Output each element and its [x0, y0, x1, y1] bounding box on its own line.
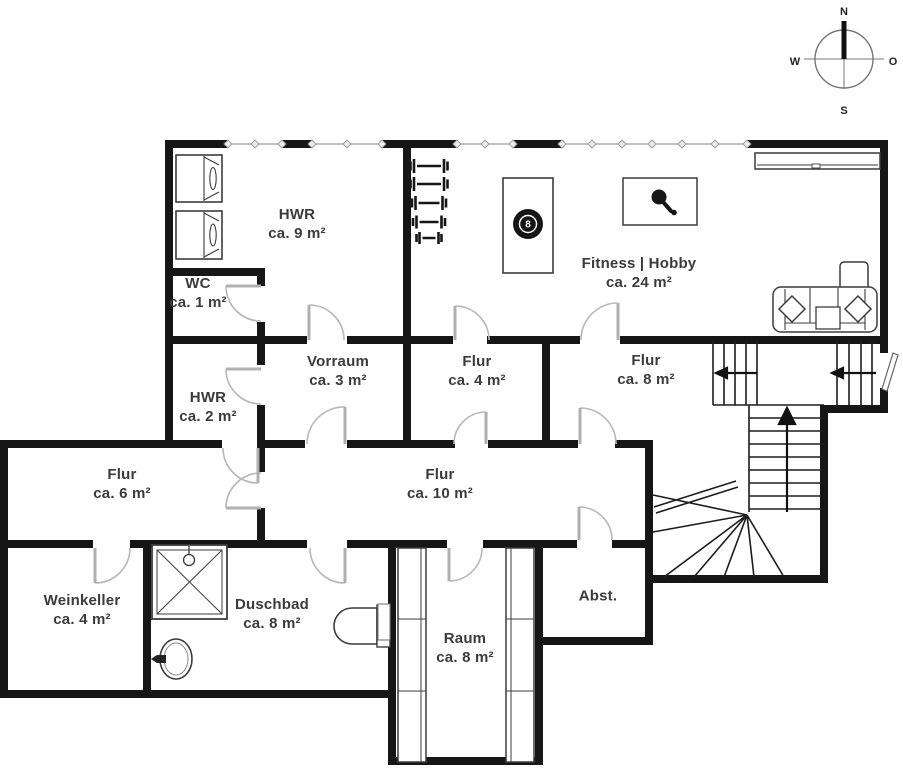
room-name: Abst. [579, 588, 618, 605]
room-name: Flur [425, 466, 454, 483]
room-name: Flur [107, 466, 136, 483]
compass-north-label: N [840, 6, 848, 18]
room-area: ca. 9 m² [268, 225, 325, 242]
table-tennis-icon [623, 178, 697, 225]
room-area: ca. 4 m² [53, 611, 110, 628]
compass-rose-icon [804, 21, 884, 89]
room-label-vorraum: Vorraum ca. 3 m² [307, 352, 369, 390]
room-label-raum: Raum ca. 8 m² [436, 629, 493, 667]
room-area: ca. 4 m² [448, 372, 505, 389]
room-area: ca. 3 m² [309, 372, 366, 389]
room-area: ca. 1 m² [169, 294, 226, 311]
wall-niche [378, 604, 390, 640]
room-name: Vorraum [307, 353, 369, 370]
room-label-weinkeller: Weinkeller ca. 4 m² [44, 591, 121, 629]
room-area: ca. 8 m² [436, 649, 493, 666]
sink-icon [151, 639, 192, 679]
room-label-hwr2: HWR ca. 2 m² [179, 388, 236, 426]
room-label-duschbad: Duschbad ca. 8 m² [235, 595, 309, 633]
room-label-flur10: Flur ca. 10 m² [407, 465, 473, 503]
walls [0, 140, 888, 765]
sink-tap-icon [151, 655, 166, 663]
stair-arrows [716, 368, 876, 512]
room-area: ca. 6 m² [93, 485, 150, 502]
room-name: Fitness | Hobby [582, 255, 697, 272]
room-name: WC [185, 275, 210, 292]
room-area: ca. 24 m² [606, 274, 672, 291]
room-label-abst: Abst. [579, 587, 618, 606]
room-label-flur8: Flur ca. 8 m² [617, 351, 674, 389]
compass-south-label: S [840, 105, 847, 117]
room-name: HWR [190, 389, 226, 406]
floor-plan: 8 [0, 0, 903, 768]
room-name: Flur [631, 352, 660, 369]
room-area: ca. 8 m² [617, 371, 674, 388]
room-name: Weinkeller [44, 592, 121, 609]
billiard-table-icon: 8 [503, 178, 553, 273]
entrance-door-icon [882, 353, 898, 391]
sideboard-icon [755, 153, 880, 169]
room-label-wc: WC ca. 1 m² [169, 274, 226, 312]
room-name: HWR [279, 206, 315, 223]
room-name: Duschbad [235, 596, 309, 613]
room-area: ca. 8 m² [243, 615, 300, 632]
washing-machine-icon [176, 155, 222, 259]
compass-west-label: W [790, 56, 800, 68]
room-name: Raum [444, 630, 486, 647]
room-area: ca. 10 m² [407, 485, 473, 502]
shower-icon [152, 545, 227, 619]
dumbbells-icon [411, 159, 448, 244]
room-label-flur6: Flur ca. 6 m² [93, 465, 150, 503]
room-name: Flur [462, 353, 491, 370]
compass-east-label: O [889, 56, 898, 68]
door-leaves [95, 286, 618, 583]
room-area: ca. 2 m² [179, 408, 236, 425]
room-label-hwr9: HWR ca. 9 m² [268, 205, 325, 243]
room-label-flur4: Flur ca. 4 m² [448, 352, 505, 390]
eight-ball-label: 8 [525, 220, 531, 231]
sofa-icon [773, 262, 877, 332]
room-label-fitness: Fitness | Hobby ca. 24 m² [582, 254, 697, 292]
door-arcs [95, 286, 618, 583]
